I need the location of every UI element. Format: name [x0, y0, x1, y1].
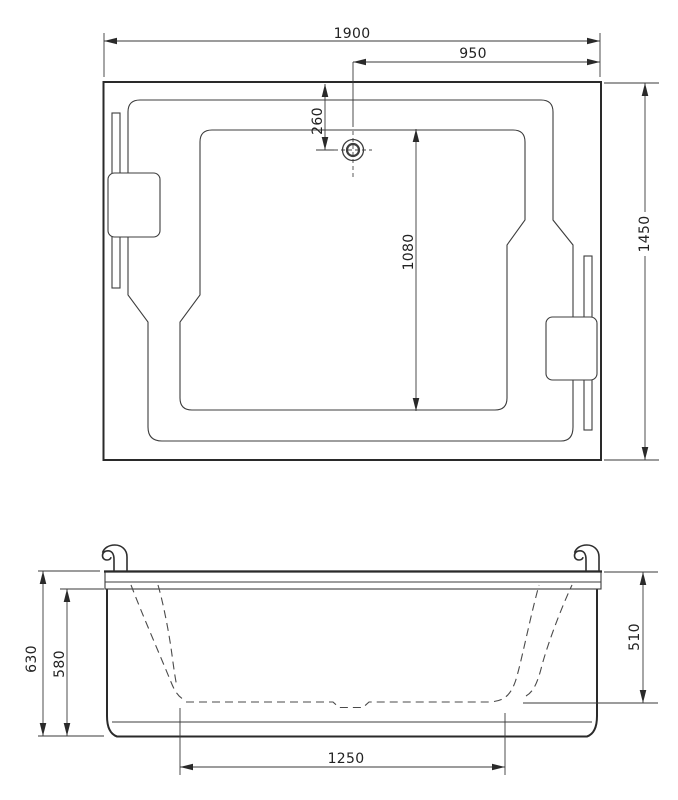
left-headrest: [108, 173, 160, 237]
arrowhead-up: [642, 83, 649, 96]
arrowhead-up: [322, 84, 329, 97]
dim-label-580: 580: [52, 650, 68, 678]
rim-slab: [105, 571, 601, 589]
arrowhead-down: [642, 447, 649, 460]
arrowhead-left: [180, 764, 193, 771]
dim-label-1080: 1080: [401, 234, 417, 271]
arrowhead-left: [353, 59, 366, 66]
arrowhead-left: [104, 38, 117, 45]
dim-label-630: 630: [24, 645, 40, 673]
tub-basin-edge: [180, 130, 525, 410]
arrowhead-right: [587, 38, 600, 45]
drain-outer-ring: [343, 140, 364, 161]
dim-edge-to-drain: 260: [310, 84, 334, 150]
left-wall-near-edge: [131, 585, 186, 701]
drawing-canvas: 1900 950 260 1080: [0, 0, 678, 800]
dim-apron-height: 580: [52, 589, 104, 736]
left-faucet-icon: [103, 545, 128, 571]
basin-bottom-line: [186, 702, 492, 708]
dim-label-260: 260: [310, 107, 326, 135]
dim-basin-base-length: 1250: [180, 708, 505, 775]
arrowhead-up: [640, 572, 647, 585]
tub-outer-edge: [104, 82, 602, 460]
apron-panel: [107, 589, 597, 737]
dim-label-1450: 1450: [637, 216, 653, 253]
left-wall-far-edge: [158, 585, 177, 687]
bathtub-technical-drawing: 1900 950 260 1080: [0, 0, 678, 800]
right-faucet-icon: [575, 545, 600, 571]
dim-label-950: 950: [459, 46, 487, 62]
right-wall-far-edge: [526, 585, 572, 696]
dim-basin-length: 1080: [401, 129, 419, 411]
arrowhead-down: [413, 398, 420, 411]
arrowhead-right: [587, 59, 600, 66]
basin-profile-hidden-lines: [131, 585, 572, 708]
arrowhead-right: [492, 764, 505, 771]
tub-rim-edge: [128, 100, 573, 441]
arrowhead-up: [413, 129, 420, 142]
arrowhead-down: [640, 690, 647, 703]
arrowhead-up: [64, 589, 71, 602]
right-wall-near-edge: [494, 585, 539, 702]
dim-center-to-end: 950: [353, 46, 600, 65]
right-headrest: [546, 317, 597, 380]
front-elevation: 630 580 510 1250: [24, 545, 658, 775]
dim-label-1900: 1900: [334, 26, 371, 42]
plan-view: 1900 950 260 1080: [104, 26, 660, 460]
arrowhead-down: [40, 723, 47, 736]
drain: [334, 62, 372, 179]
arrowhead-down: [322, 137, 329, 150]
dim-overall-width: 1450: [604, 83, 659, 460]
dim-label-510: 510: [627, 623, 643, 651]
dim-label-1250: 1250: [328, 751, 365, 767]
arrowhead-down: [64, 723, 71, 736]
dim-inner-depth: 510: [523, 572, 658, 703]
arrowhead-up: [40, 571, 47, 584]
dim-overall-length: 1900: [104, 26, 600, 77]
